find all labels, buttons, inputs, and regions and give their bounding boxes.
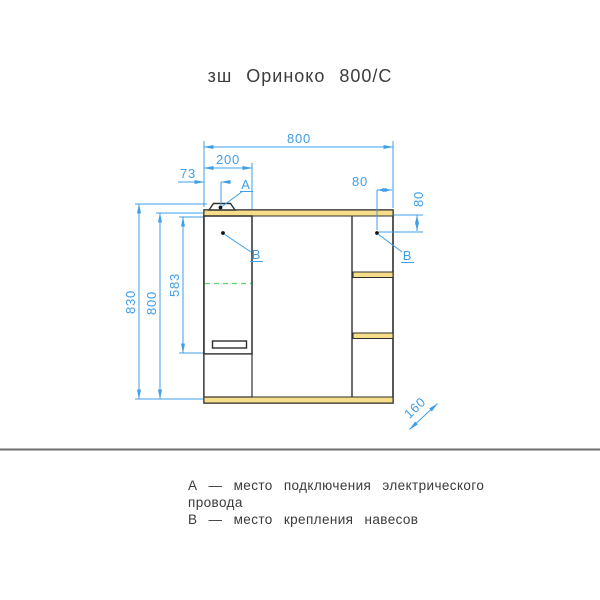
dim-label-583: 583 — [167, 273, 182, 297]
dim-label-200: 200 — [216, 152, 240, 167]
legend: А — место подключения электрического про… — [188, 477, 528, 528]
dim-label-800-top: 800 — [287, 131, 311, 146]
left-open-niche — [204, 354, 252, 397]
marker-label-a: А — [241, 177, 250, 192]
leader-a — [222, 191, 243, 207]
right-shelf-lower — [353, 333, 393, 339]
dim-label-80-horizontal: 80 — [352, 174, 368, 189]
dim-label-160: 160 — [401, 394, 429, 421]
legend-line-1: А — место подключения электрического — [188, 477, 528, 494]
dim-label-800-left: 800 — [144, 291, 159, 315]
marker-label-b-left: В — [252, 247, 261, 262]
bottom-panel-edge — [204, 397, 393, 403]
door-handle — [213, 341, 247, 348]
legend-line-3: В — место крепления навесов — [188, 511, 528, 528]
cabinet-front-view — [204, 204, 393, 404]
marker-label-b-right: В — [403, 248, 412, 263]
right-shelf-upper — [353, 272, 393, 278]
dim-label-830: 830 — [123, 290, 138, 314]
legend-line-2: провода — [188, 494, 528, 511]
top-panel-edge — [204, 210, 393, 216]
dim-label-80-vertical: 80 — [411, 191, 426, 207]
dim-label-73: 73 — [180, 166, 196, 181]
